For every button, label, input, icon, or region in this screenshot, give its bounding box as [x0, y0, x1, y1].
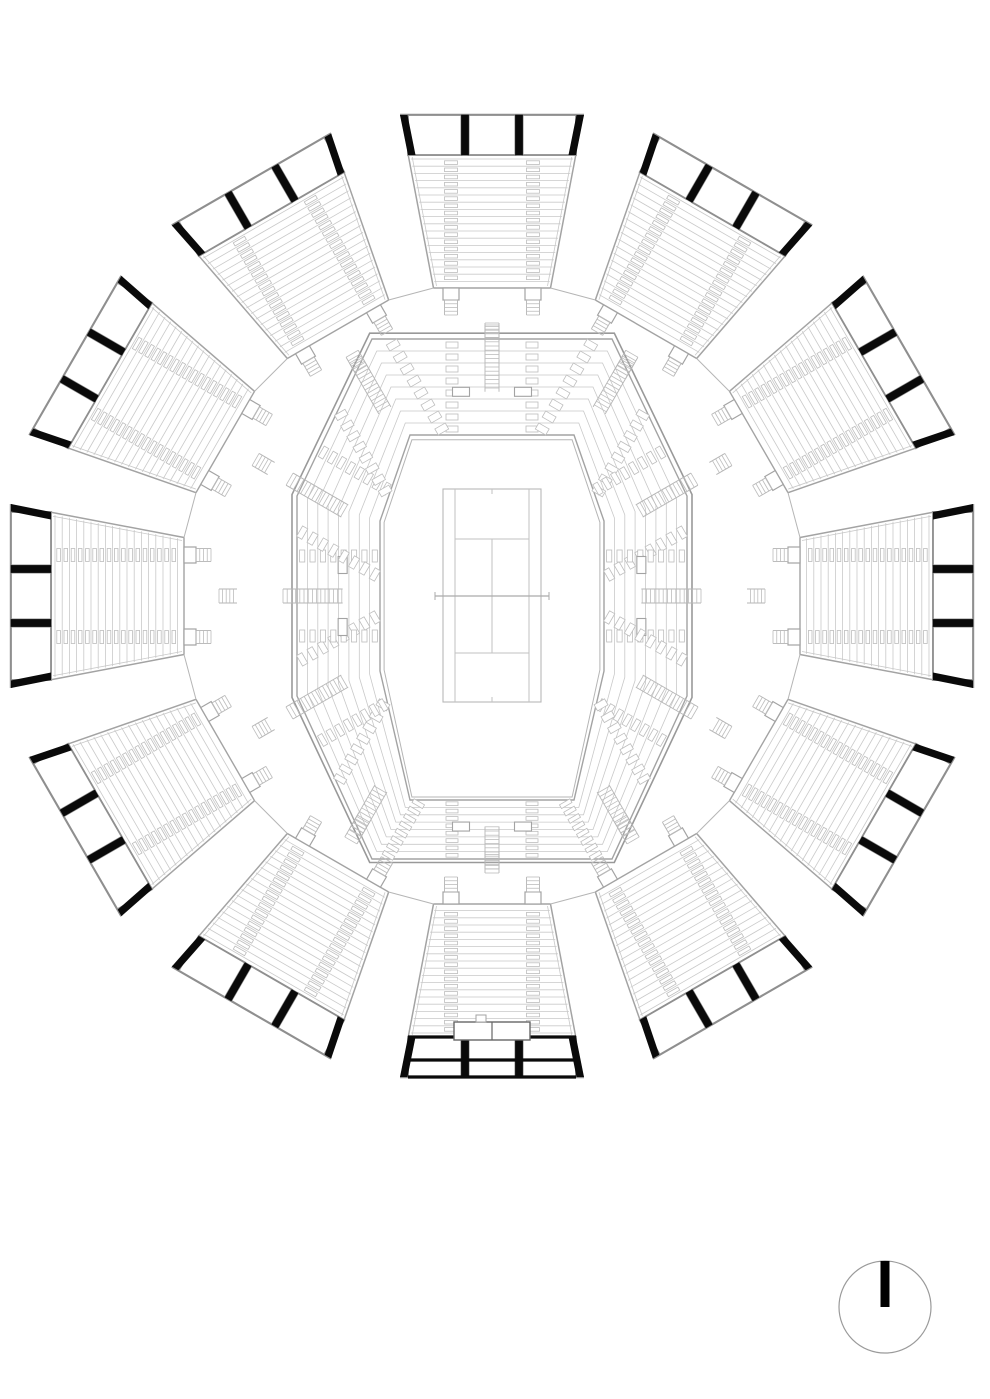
drawing-sheet: [0, 0, 990, 1399]
stadium-plan-svg: [0, 0, 990, 1399]
north-arrow-bar: [881, 1261, 890, 1307]
outer-gallery-band: [400, 115, 584, 155]
outer-gallery-band: [11, 504, 51, 688]
outer-gallery-band: [933, 504, 973, 688]
